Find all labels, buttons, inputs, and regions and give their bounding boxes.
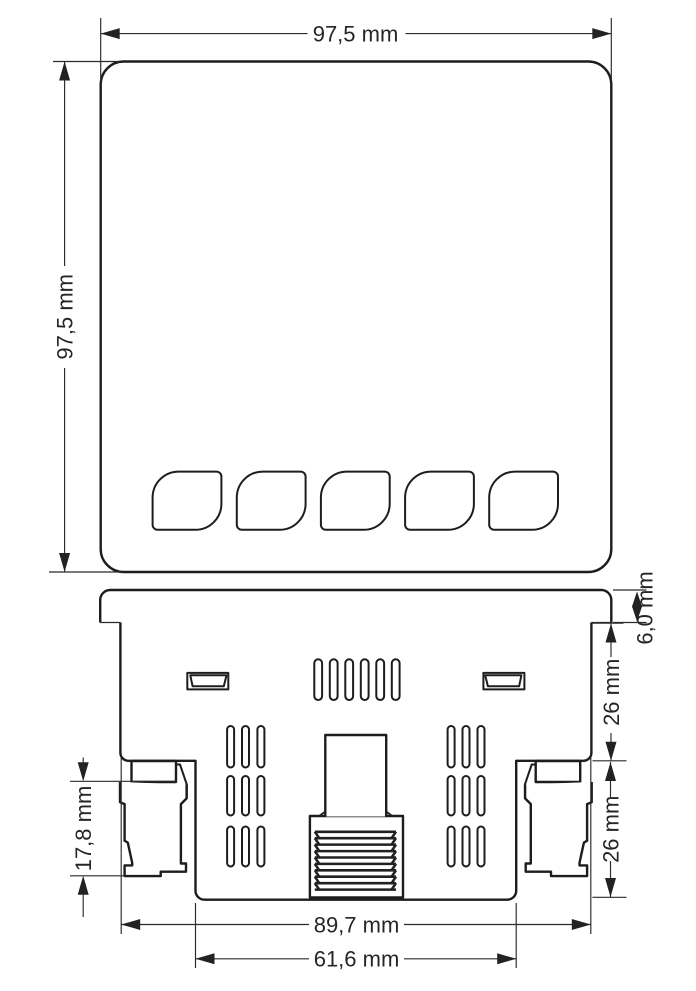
svg-text:17,8 mm: 17,8 mm [71, 786, 96, 872]
svg-text:61,6 mm: 61,6 mm [314, 947, 400, 972]
svg-text:26 mm: 26 mm [598, 796, 623, 863]
svg-text:89,7 mm: 89,7 mm [314, 912, 400, 937]
svg-text:6,0 mm: 6,0 mm [633, 571, 658, 644]
svg-text:97,5 mm: 97,5 mm [313, 21, 399, 46]
svg-text:26 mm: 26 mm [599, 659, 624, 726]
svg-text:97,5 mm: 97,5 mm [52, 274, 77, 360]
